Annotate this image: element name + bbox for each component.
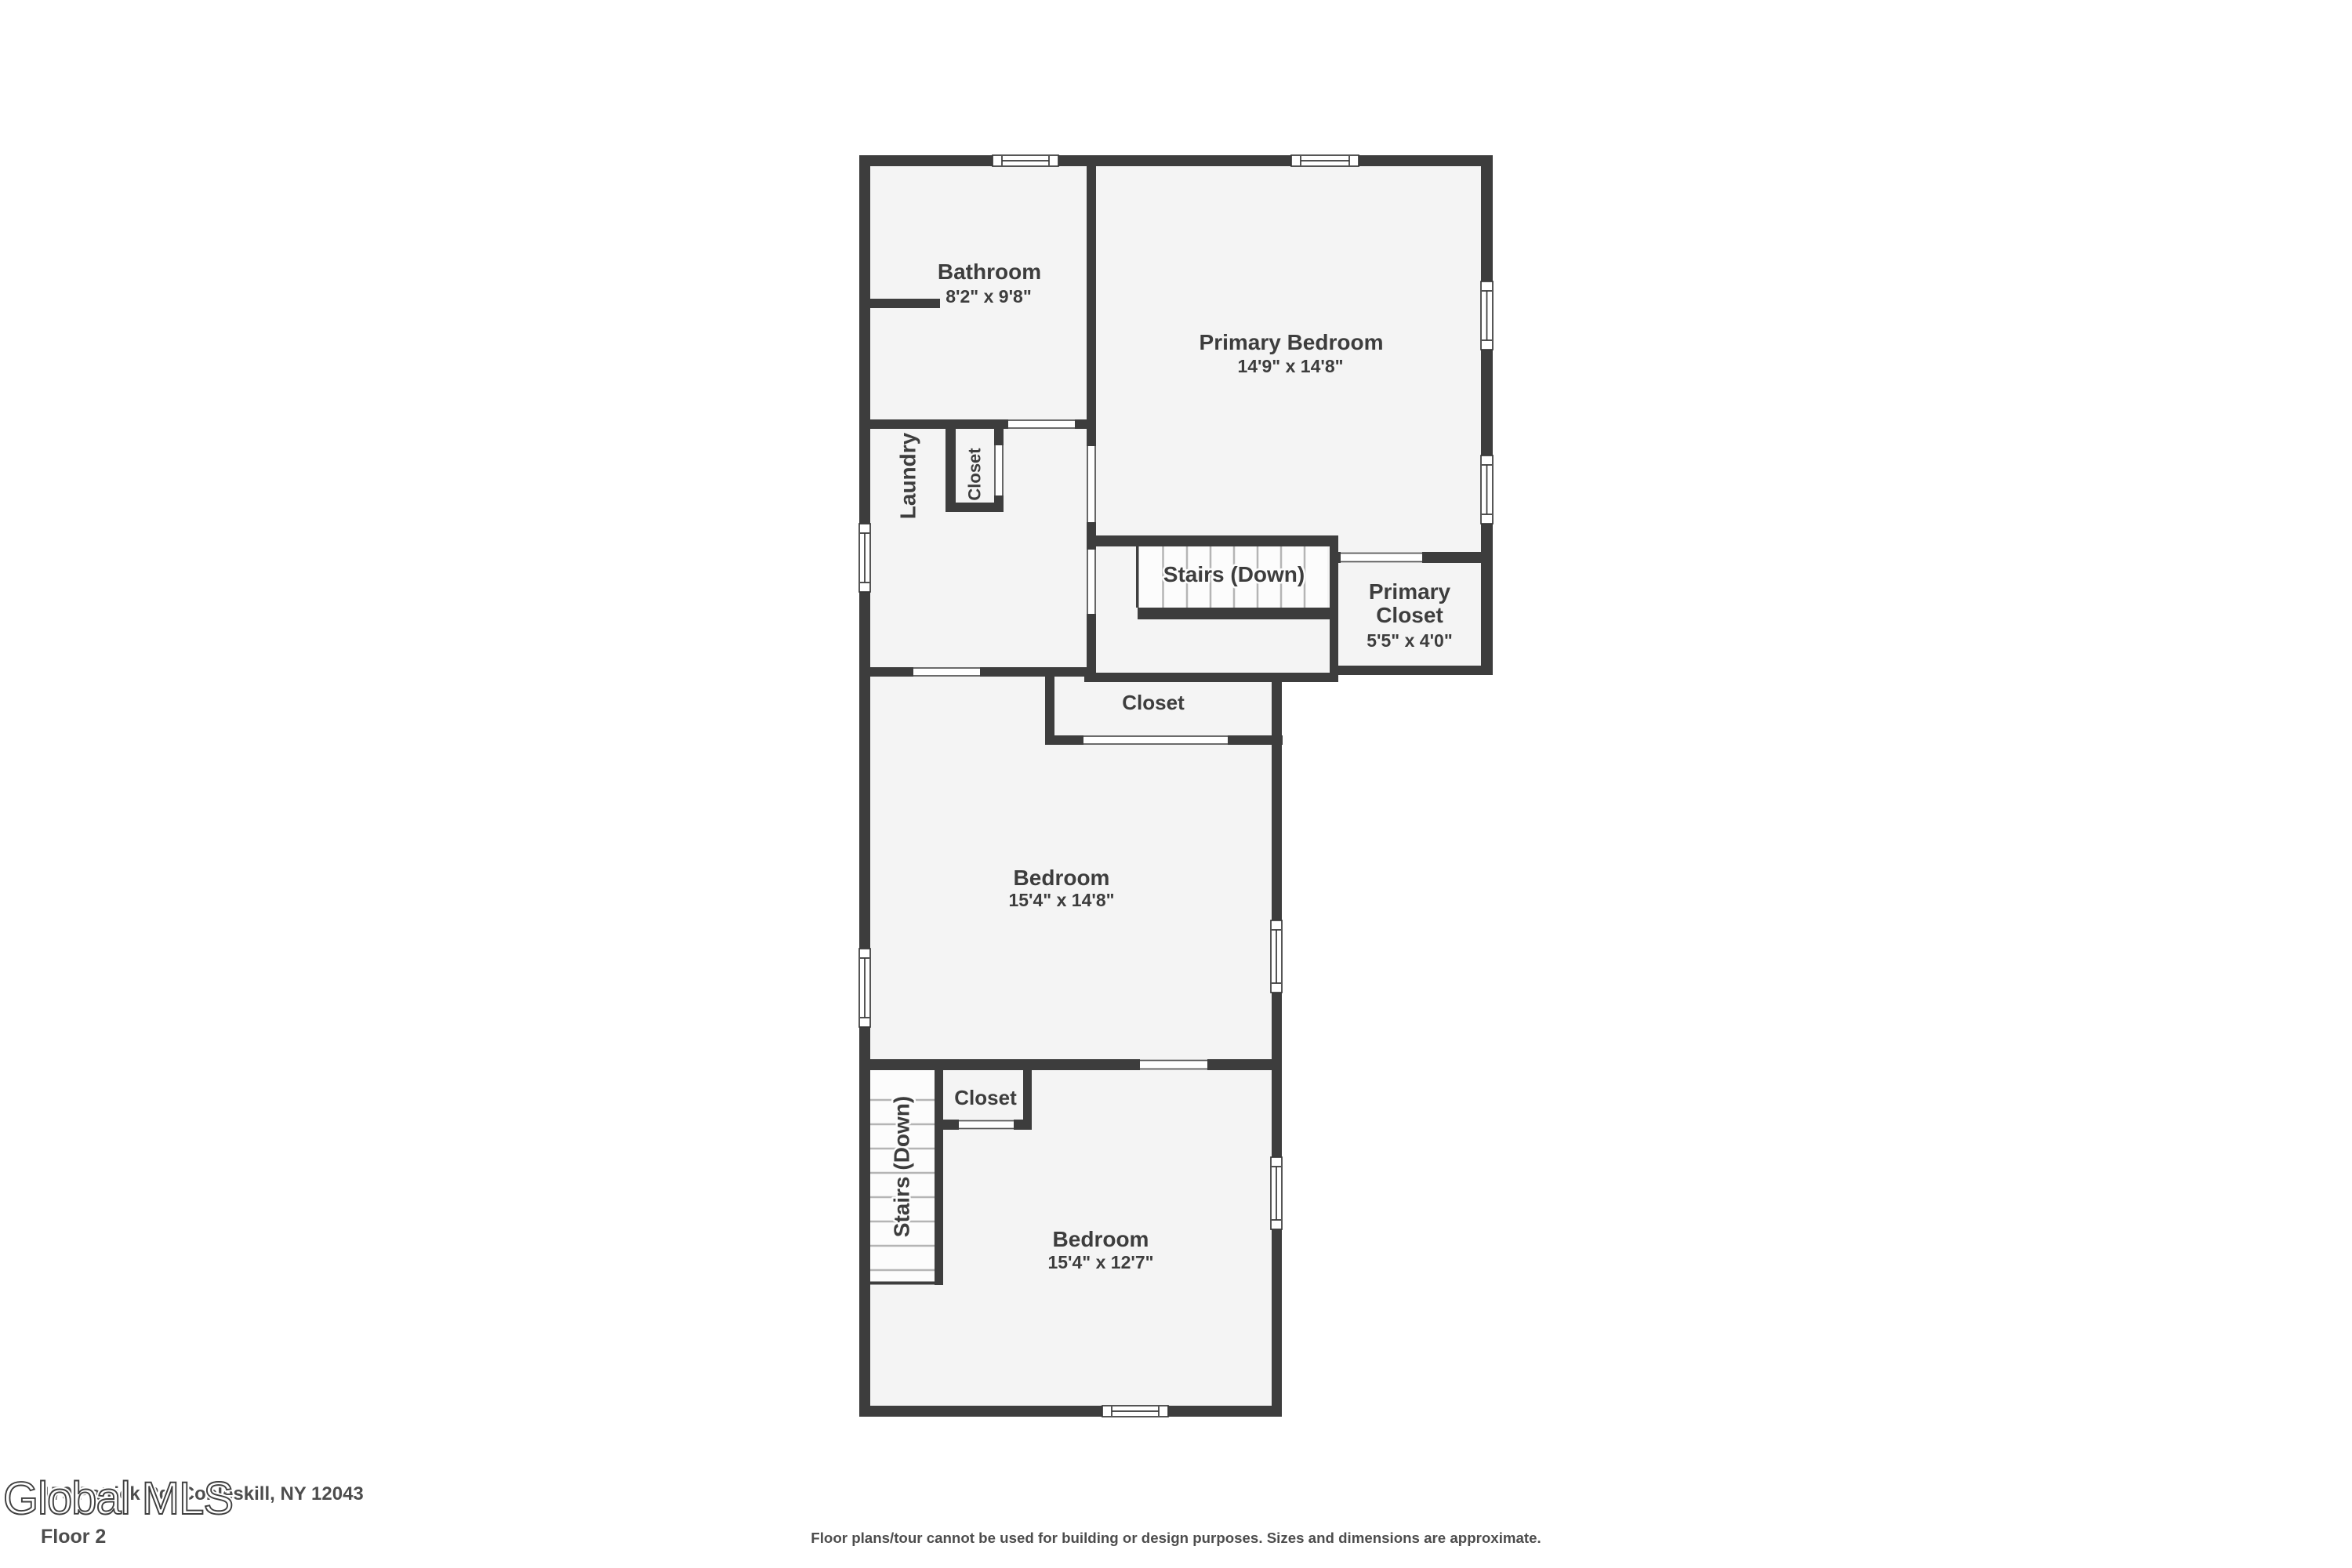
svg-text:14'9" x 14'8": 14'9" x 14'8" [1237,356,1343,376]
svg-text:Primary Bedroom: Primary Bedroom [1200,330,1384,354]
svg-text:Bedroom: Bedroom [1014,866,1110,890]
svg-text:Primary: Primary [1369,579,1451,604]
svg-text:5'5" x 4'0": 5'5" x 4'0" [1367,630,1453,651]
svg-text:Closet: Closet [965,448,985,501]
svg-text:15'4" x 14'8": 15'4" x 14'8" [1008,890,1114,910]
svg-text:Floor 2: Floor 2 [41,1526,106,1548]
svg-text:8'2" x 9'8": 8'2" x 9'8" [946,286,1032,307]
svg-text:Laundry: Laundry [896,432,920,519]
svg-text:Bathroom: Bathroom [938,260,1041,284]
svg-text:Stairs (Down): Stairs (Down) [890,1096,914,1237]
svg-text:Global MLS: Global MLS [3,1473,233,1524]
svg-text:Floor plans/tour cannot be use: Floor plans/tour cannot be used for buil… [811,1530,1541,1546]
svg-text:Closet: Closet [954,1086,1017,1109]
svg-text:Closet: Closet [1376,603,1443,627]
svg-text:Bedroom: Bedroom [1053,1227,1149,1251]
svg-text:15'4" x 12'7": 15'4" x 12'7" [1047,1252,1153,1272]
svg-text:Closet: Closet [1122,691,1185,714]
svg-text:Stairs (Down): Stairs (Down) [1163,562,1305,586]
